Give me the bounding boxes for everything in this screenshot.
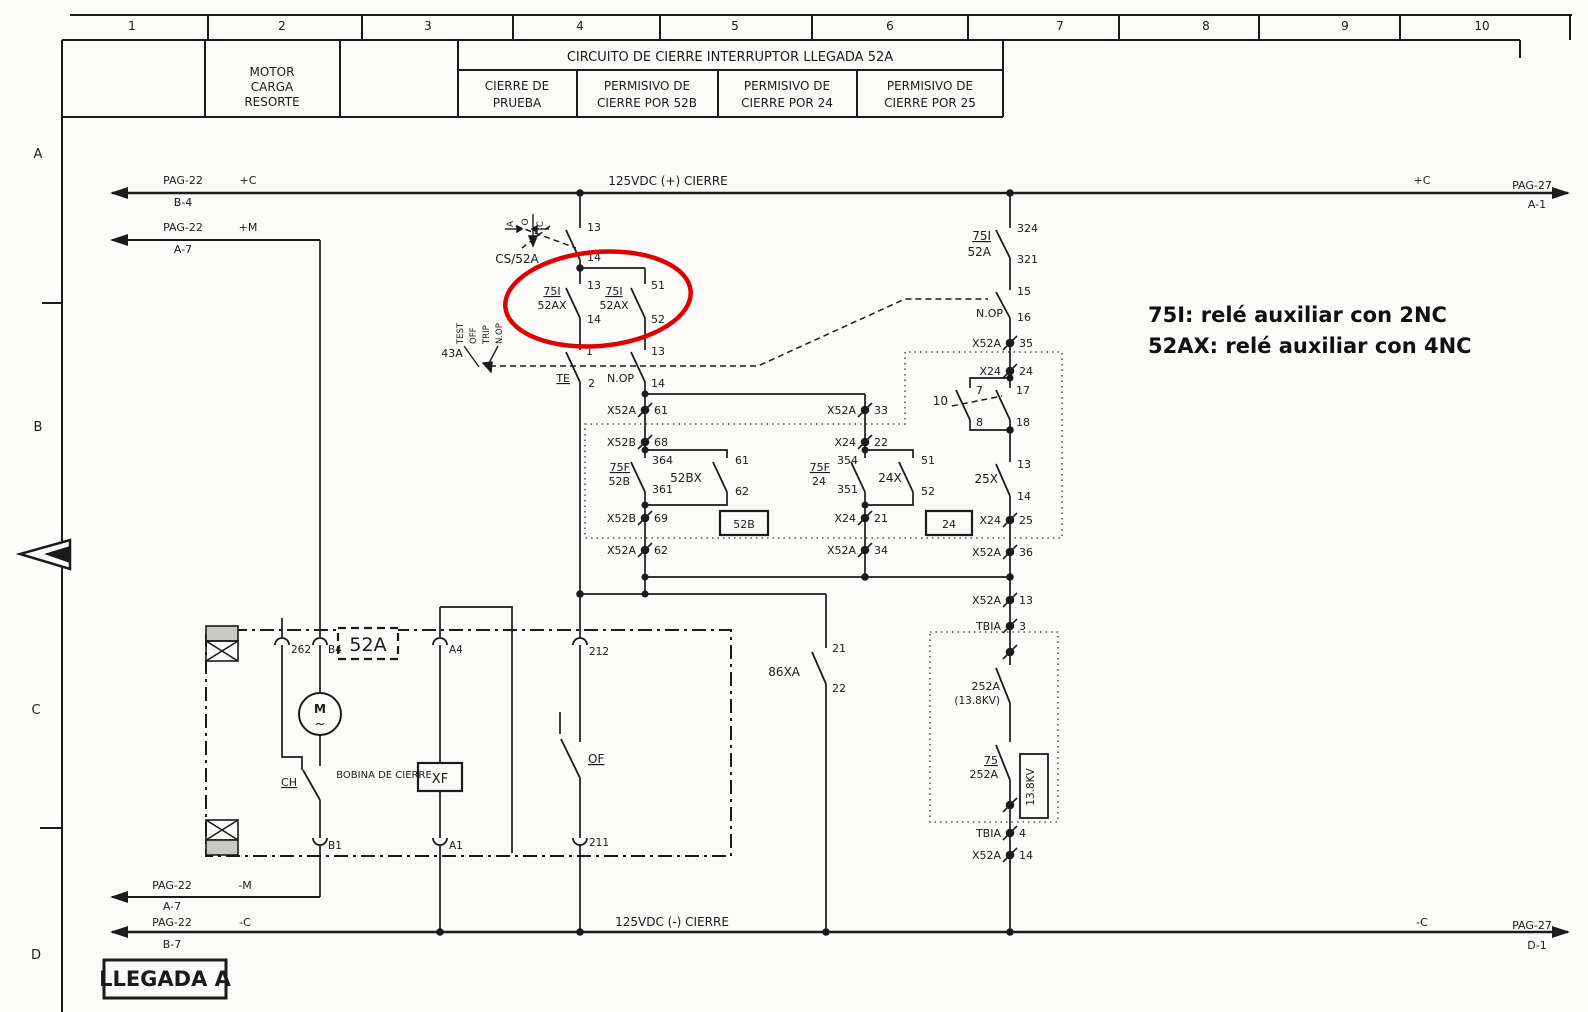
ref-pag27-a1-a: PAG-27 [1512, 179, 1552, 192]
terminal-name-tbia-4: TBIA [975, 827, 1002, 840]
switch-43a: 43A [441, 347, 463, 360]
pin-nop-14: 14 [651, 377, 665, 390]
terminal-pin-24: 24 [1019, 365, 1033, 378]
cell-prueba-1: CIERRE DE [485, 79, 549, 93]
pin-nopr-15: 15 [1017, 285, 1031, 298]
plug-212: 212 [589, 646, 609, 658]
blade-25x [996, 464, 1010, 496]
bus-minus-c-right: -C [1416, 916, 1428, 929]
contact-ch: CH [281, 776, 297, 789]
pin-75i2-52: 52 [651, 313, 665, 326]
wiring-diagram: 12345678910ABCDMOTORCARGARESORTECIRCUITO… [0, 0, 1588, 1012]
contact-of: OF [588, 752, 604, 766]
contact-te: TE [555, 372, 570, 385]
blade-52bx [713, 462, 727, 492]
bus-minus-m: -M [238, 879, 251, 892]
relay-75i-2a: 75I [605, 285, 622, 298]
pos-test: TEST [456, 322, 466, 345]
frame-border [62, 40, 1520, 1012]
relay-75i-2b: 52AX [599, 299, 629, 312]
pin-86xa-21: 21 [832, 642, 846, 655]
bus-minus-c: -C [239, 916, 251, 929]
relay-75i-1a: 75I [543, 285, 560, 298]
pin-nopr-16: 16 [1017, 311, 1031, 324]
cell-25-1: PERMISIVO DE [887, 79, 973, 93]
bus-pos-name: 125VDC (+) CIERRE [608, 174, 728, 188]
relay-24x: 24X [878, 471, 902, 485]
ref-pag22-a7-a: PAG-22 [163, 221, 203, 234]
pin-24x-51: 51 [921, 454, 935, 467]
plug-a4: A4 [449, 644, 463, 656]
relay-75i-1b: 52AX [537, 299, 567, 312]
pin-25x-14: 14 [1017, 490, 1031, 503]
cell-24-1: PERMISIVO DE [744, 79, 830, 93]
cs-pos-a: A [506, 220, 516, 227]
pin-10-17: 17 [1016, 384, 1030, 397]
cell-motor-1: MOTOR [250, 65, 295, 79]
pin-24x-52: 52 [921, 485, 935, 498]
contact-nop-r: N.OP [976, 307, 1003, 320]
cell-24-2: CIERRE POR 24 [741, 96, 833, 110]
pos-off: OFF [469, 327, 479, 344]
cell-52b-1: PERMISIVO DE [604, 79, 690, 93]
relay-75f52b-b: 52B [608, 475, 630, 488]
grid-row-c: C [31, 703, 40, 718]
grid-col-1: 1 [128, 19, 136, 33]
pos-trip: TRIP [482, 325, 492, 345]
blade-75i-52ax-2 [631, 288, 645, 318]
pin-75i1-14: 14 [587, 313, 601, 326]
ref-pag22-b4-b: B-4 [174, 196, 193, 209]
pin-86xa-22: 22 [832, 682, 846, 695]
terminal-pin-69: 69 [654, 512, 668, 525]
blade-75i-52ax-1 [566, 288, 580, 318]
pin-75f24-354: 354 [837, 454, 858, 467]
pin-75i52a-321: 321 [1017, 253, 1038, 266]
title: CIRCUITO DE CIERRE INTERRUPTOR LLEGADA 5… [567, 50, 893, 65]
plug-262: 262 [291, 644, 311, 656]
pin-75f52b-364: 364 [652, 454, 673, 467]
ref-pag22-ma: PAG-22 [152, 879, 192, 892]
pin-25x-13: 13 [1017, 458, 1031, 471]
terminal-pin-4: 4 [1019, 827, 1026, 840]
terminal-pin-33: 33 [874, 404, 888, 417]
pin-nop-13: 13 [651, 345, 665, 358]
plug-b4-arc [313, 638, 327, 645]
sheet-name: LLEGADA A [99, 967, 232, 991]
relay-75i52a-b: 52A [968, 245, 992, 259]
cell-25-2: CIERRE POR 25 [884, 96, 976, 110]
bus-plus-m: +M [239, 221, 258, 234]
terminal-pin-62: 62 [654, 544, 668, 557]
plug-211-arc [573, 838, 587, 845]
plug-212-arc [573, 638, 587, 645]
pin-te-1: 1 [586, 345, 593, 358]
breaker-52a-cubicle [206, 630, 731, 856]
selector-arrows [464, 214, 549, 372]
terminal-name-x52a-33: X52A [827, 404, 857, 417]
terminal-pin-3: 3 [1019, 620, 1026, 633]
plug-b1: B1 [328, 840, 342, 852]
relay-75f24-a: 75F [810, 461, 830, 474]
pos-nop: N.OP [495, 323, 505, 344]
terminal-pin-36: 36 [1019, 546, 1033, 559]
blade-75-252a [996, 745, 1010, 780]
plug-262-arc [275, 638, 289, 645]
relay-75f52b-a: 75F [610, 461, 630, 474]
pin-75f24-351: 351 [837, 483, 858, 496]
relay-252a-b: (13.8KV) [954, 695, 1000, 707]
grid-row-a: A [34, 147, 43, 162]
schematic-sheet: 12345678910ABCDMOTORCARGARESORTECIRCUITO… [0, 0, 1588, 1012]
relay-25x: 25X [975, 472, 999, 486]
relay-75f24-b: 24 [812, 475, 826, 488]
terminal-name-x52b-68: X52B [607, 436, 636, 449]
pin-75i52a-324: 324 [1017, 222, 1038, 235]
terminal-name-x52b-69: X52B [607, 512, 636, 525]
terminal-pin-68: 68 [654, 436, 668, 449]
pin-75i1-13: 13 [587, 279, 601, 292]
pin-te-2: 2 [588, 377, 595, 390]
coil-xf: XF [432, 772, 448, 787]
relay-75252a-b: 252A [969, 768, 998, 781]
junction-dots [436, 189, 1014, 936]
ref-pag22-cb: B-7 [163, 938, 182, 951]
terminal-pin-14: 14 [1019, 849, 1033, 862]
pin-cs-13: 13 [587, 221, 601, 234]
annotation-line-1: 75I: relé auxiliar con 2NC [1148, 300, 1472, 331]
plug-b1-arc [313, 838, 327, 845]
grid-col-4: 4 [576, 19, 584, 33]
terminal-name-x52a-13: X52A [972, 594, 1002, 607]
relay-52bx: 52BX [670, 471, 702, 485]
cell-52b-2: CIERRE POR 52B [597, 96, 697, 110]
terminal-name-x52a-36: X52A [972, 546, 1002, 559]
grid-col-8: 8 [1202, 19, 1210, 33]
pin-10-7: 7 [976, 384, 983, 397]
terminal-name-x52a-35: X52A [972, 337, 1002, 350]
terminal-name-x24-22: X24 [834, 436, 856, 449]
ref-pag22-mb: A-7 [163, 900, 181, 913]
motor-tilde: ~ [315, 717, 326, 732]
terminal-name-x52a-61: X52A [607, 404, 637, 417]
terminal-pin-34: 34 [874, 544, 888, 557]
plug-connectors [275, 638, 587, 845]
pin-75i2-51: 51 [651, 279, 665, 292]
blade-ch [303, 770, 320, 800]
grid-row-d: D [31, 948, 41, 963]
cell-motor-2: CARGA [251, 80, 294, 94]
ref-pag27-d1-b: D-1 [1527, 939, 1546, 952]
motor-m: M [314, 702, 326, 716]
wire-262 [282, 618, 302, 770]
terminal-name-x52a-62: X52A [607, 544, 637, 557]
box-138kv: 13.8KV [1025, 767, 1037, 805]
terminal-pin-25: 25 [1019, 514, 1033, 527]
bus-plus-c-right: +C [1414, 174, 1431, 187]
label-bobina: BOBINA DE CIERRE [336, 770, 432, 781]
relay-75252a-a: 75 [984, 754, 998, 767]
plug-b4: B4 [328, 644, 342, 656]
blade-75f-52b [631, 462, 645, 492]
terminal-name-x52a-14: X52A [972, 849, 1002, 862]
plug-a1-arc [433, 838, 447, 845]
grid-col-2: 2 [278, 19, 286, 33]
relay-252a-a: 252A [971, 680, 1000, 693]
relay-86xa: 86XA [768, 665, 800, 679]
grid-row-b: B [34, 420, 43, 435]
annotation-note: 75I: relé auxiliar con 2NC 52AX: relé au… [1148, 300, 1472, 362]
annotation-line-2: 52AX: relé auxiliar con 4NC [1148, 331, 1472, 362]
contact-10: 10 [933, 394, 948, 408]
blade-10b [996, 390, 1010, 420]
ref-pag27-a1-b: A-1 [1528, 198, 1546, 211]
terminal-name-x24-25: X24 [979, 514, 1001, 527]
ref-pag22-ca: PAG-22 [152, 916, 192, 929]
terminal-name-x24-24: X24 [979, 365, 1001, 378]
plug-211: 211 [589, 837, 609, 849]
ref-pag22-a7-b: A-7 [174, 243, 192, 256]
cs-pos-c: C [536, 221, 546, 227]
grid-col-10: 10 [1474, 19, 1489, 33]
pin-10-18: 18 [1016, 416, 1030, 429]
blade-of [561, 739, 580, 778]
pin-52bx-61: 61 [735, 454, 749, 467]
terminal-name-x24-21: X24 [834, 512, 856, 525]
blade-75i-52a [996, 230, 1010, 258]
terminal-name-x52a-34: X52A [827, 544, 857, 557]
match-arrow [20, 540, 70, 569]
terminal-pin-61: 61 [654, 404, 668, 417]
grid-col-3: 3 [424, 19, 432, 33]
plug-a1: A1 [449, 840, 463, 852]
terminal-pin-21: 21 [874, 512, 888, 525]
cell-prueba-2: PRUEBA [493, 96, 542, 110]
cell-motor-3: RESORTE [244, 95, 299, 109]
bus-neg-name: 125VDC (-) CIERRE [615, 915, 729, 929]
blade-86xa [812, 652, 826, 684]
wiring [282, 193, 1010, 932]
terminal-pin-35: 35 [1019, 337, 1033, 350]
pin-10-8: 8 [976, 416, 983, 429]
switch-cs52a: CS/52A [495, 252, 539, 266]
grid-col-9: 9 [1341, 19, 1349, 33]
terminal-strip-marks [206, 626, 238, 855]
blade-10a [956, 390, 970, 420]
pin-52bx-62: 62 [735, 485, 749, 498]
relay-75i52a-a: 75I [972, 229, 991, 243]
ref-pag22-b4-a: PAG-22 [163, 174, 203, 187]
grid-col-7: 7 [1056, 19, 1064, 33]
terminal-pin-22: 22 [874, 436, 888, 449]
box-52a: 52A [349, 634, 386, 656]
box-52b: 52B [733, 518, 755, 531]
ref-pag27-d1-a: PAG-27 [1512, 919, 1552, 932]
plug-a4-arc [433, 638, 447, 645]
cubicle-252a-box [930, 632, 1058, 822]
terminal-name-tbia-3: TBIA [975, 620, 1002, 633]
box-24: 24 [942, 518, 956, 531]
cs-pos-o: O [521, 218, 531, 225]
grid-col-6: 6 [886, 19, 894, 33]
sheet-frame [40, 15, 1572, 1012]
pin-cs-14: 14 [587, 251, 601, 264]
bus-plus-c: +C [240, 174, 257, 187]
terminal-pin-13: 13 [1019, 594, 1033, 607]
contact-nop-l: N.OP [607, 372, 634, 385]
grid-col-5: 5 [731, 19, 739, 33]
